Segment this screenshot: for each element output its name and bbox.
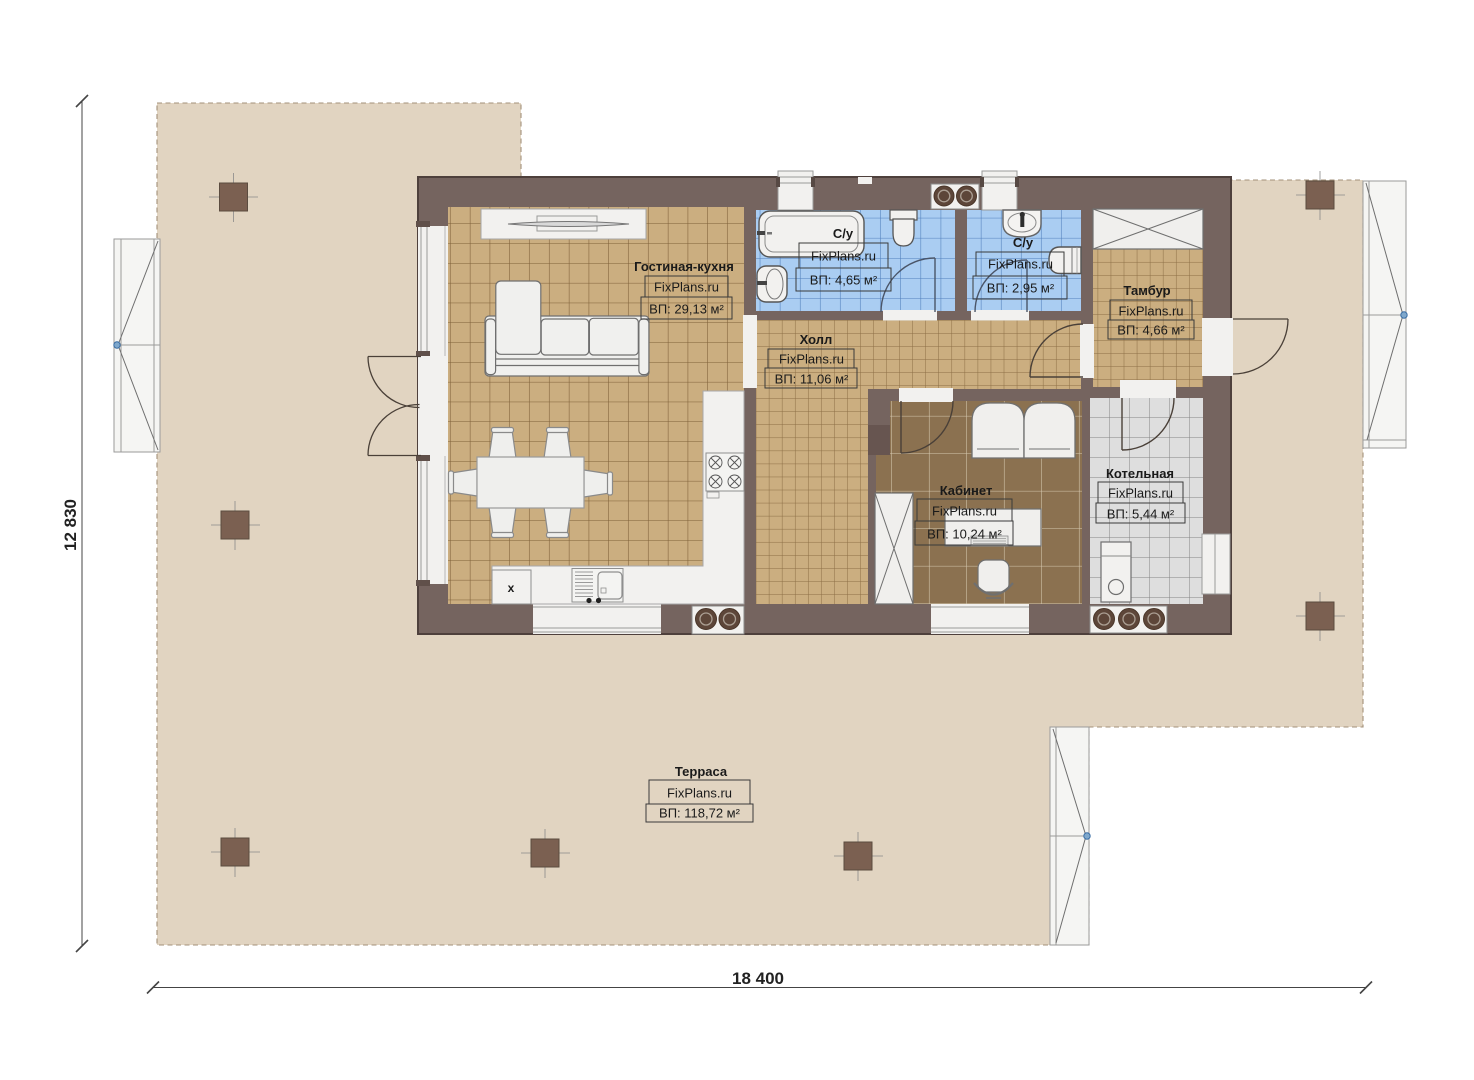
svg-text:ВП: 5,44 м²: ВП: 5,44 м² (1107, 507, 1175, 522)
svg-text:ВП: 11,06 м²: ВП: 11,06 м² (775, 372, 849, 387)
svg-text:FixPlans.ru: FixPlans.ru (667, 786, 732, 801)
svg-text:Котельная: Котельная (1106, 466, 1174, 481)
svg-text:ВП: 2,95 м²: ВП: 2,95 м² (987, 281, 1055, 296)
svg-text:С/у: С/у (833, 226, 854, 241)
svg-text:FixPlans.ru: FixPlans.ru (779, 352, 844, 367)
svg-text:ВП: 118,72 м²: ВП: 118,72 м² (659, 806, 741, 821)
svg-text:FixPlans.ru: FixPlans.ru (932, 504, 997, 519)
svg-text:Холл: Холл (800, 332, 833, 347)
svg-text:x: x (508, 581, 515, 595)
svg-text:FixPlans.ru: FixPlans.ru (654, 280, 719, 295)
svg-text:ВП: 29,13 м²: ВП: 29,13 м² (649, 302, 724, 317)
svg-text:ВП: 4,66 м²: ВП: 4,66 м² (1117, 323, 1185, 338)
svg-text:18 400: 18 400 (732, 969, 784, 988)
svg-text:FixPlans.ru: FixPlans.ru (988, 257, 1053, 272)
svg-text:ВП: 10,24 м²: ВП: 10,24 м² (927, 527, 1002, 542)
svg-text:Гостиная-кухня: Гостиная-кухня (634, 259, 734, 274)
svg-text:FixPlans.ru: FixPlans.ru (1118, 304, 1183, 319)
svg-text:12 830: 12 830 (61, 499, 80, 551)
svg-text:Кабинет: Кабинет (940, 483, 993, 498)
svg-text:С/у: С/у (1013, 235, 1034, 250)
svg-text:Тамбур: Тамбур (1123, 283, 1170, 298)
svg-text:FixPlans.ru: FixPlans.ru (1108, 486, 1173, 501)
svg-text:ВП: 4,65 м²: ВП: 4,65 м² (810, 273, 878, 288)
svg-text:Терраса: Терраса (675, 764, 728, 779)
svg-text:FixPlans.ru: FixPlans.ru (811, 249, 876, 264)
